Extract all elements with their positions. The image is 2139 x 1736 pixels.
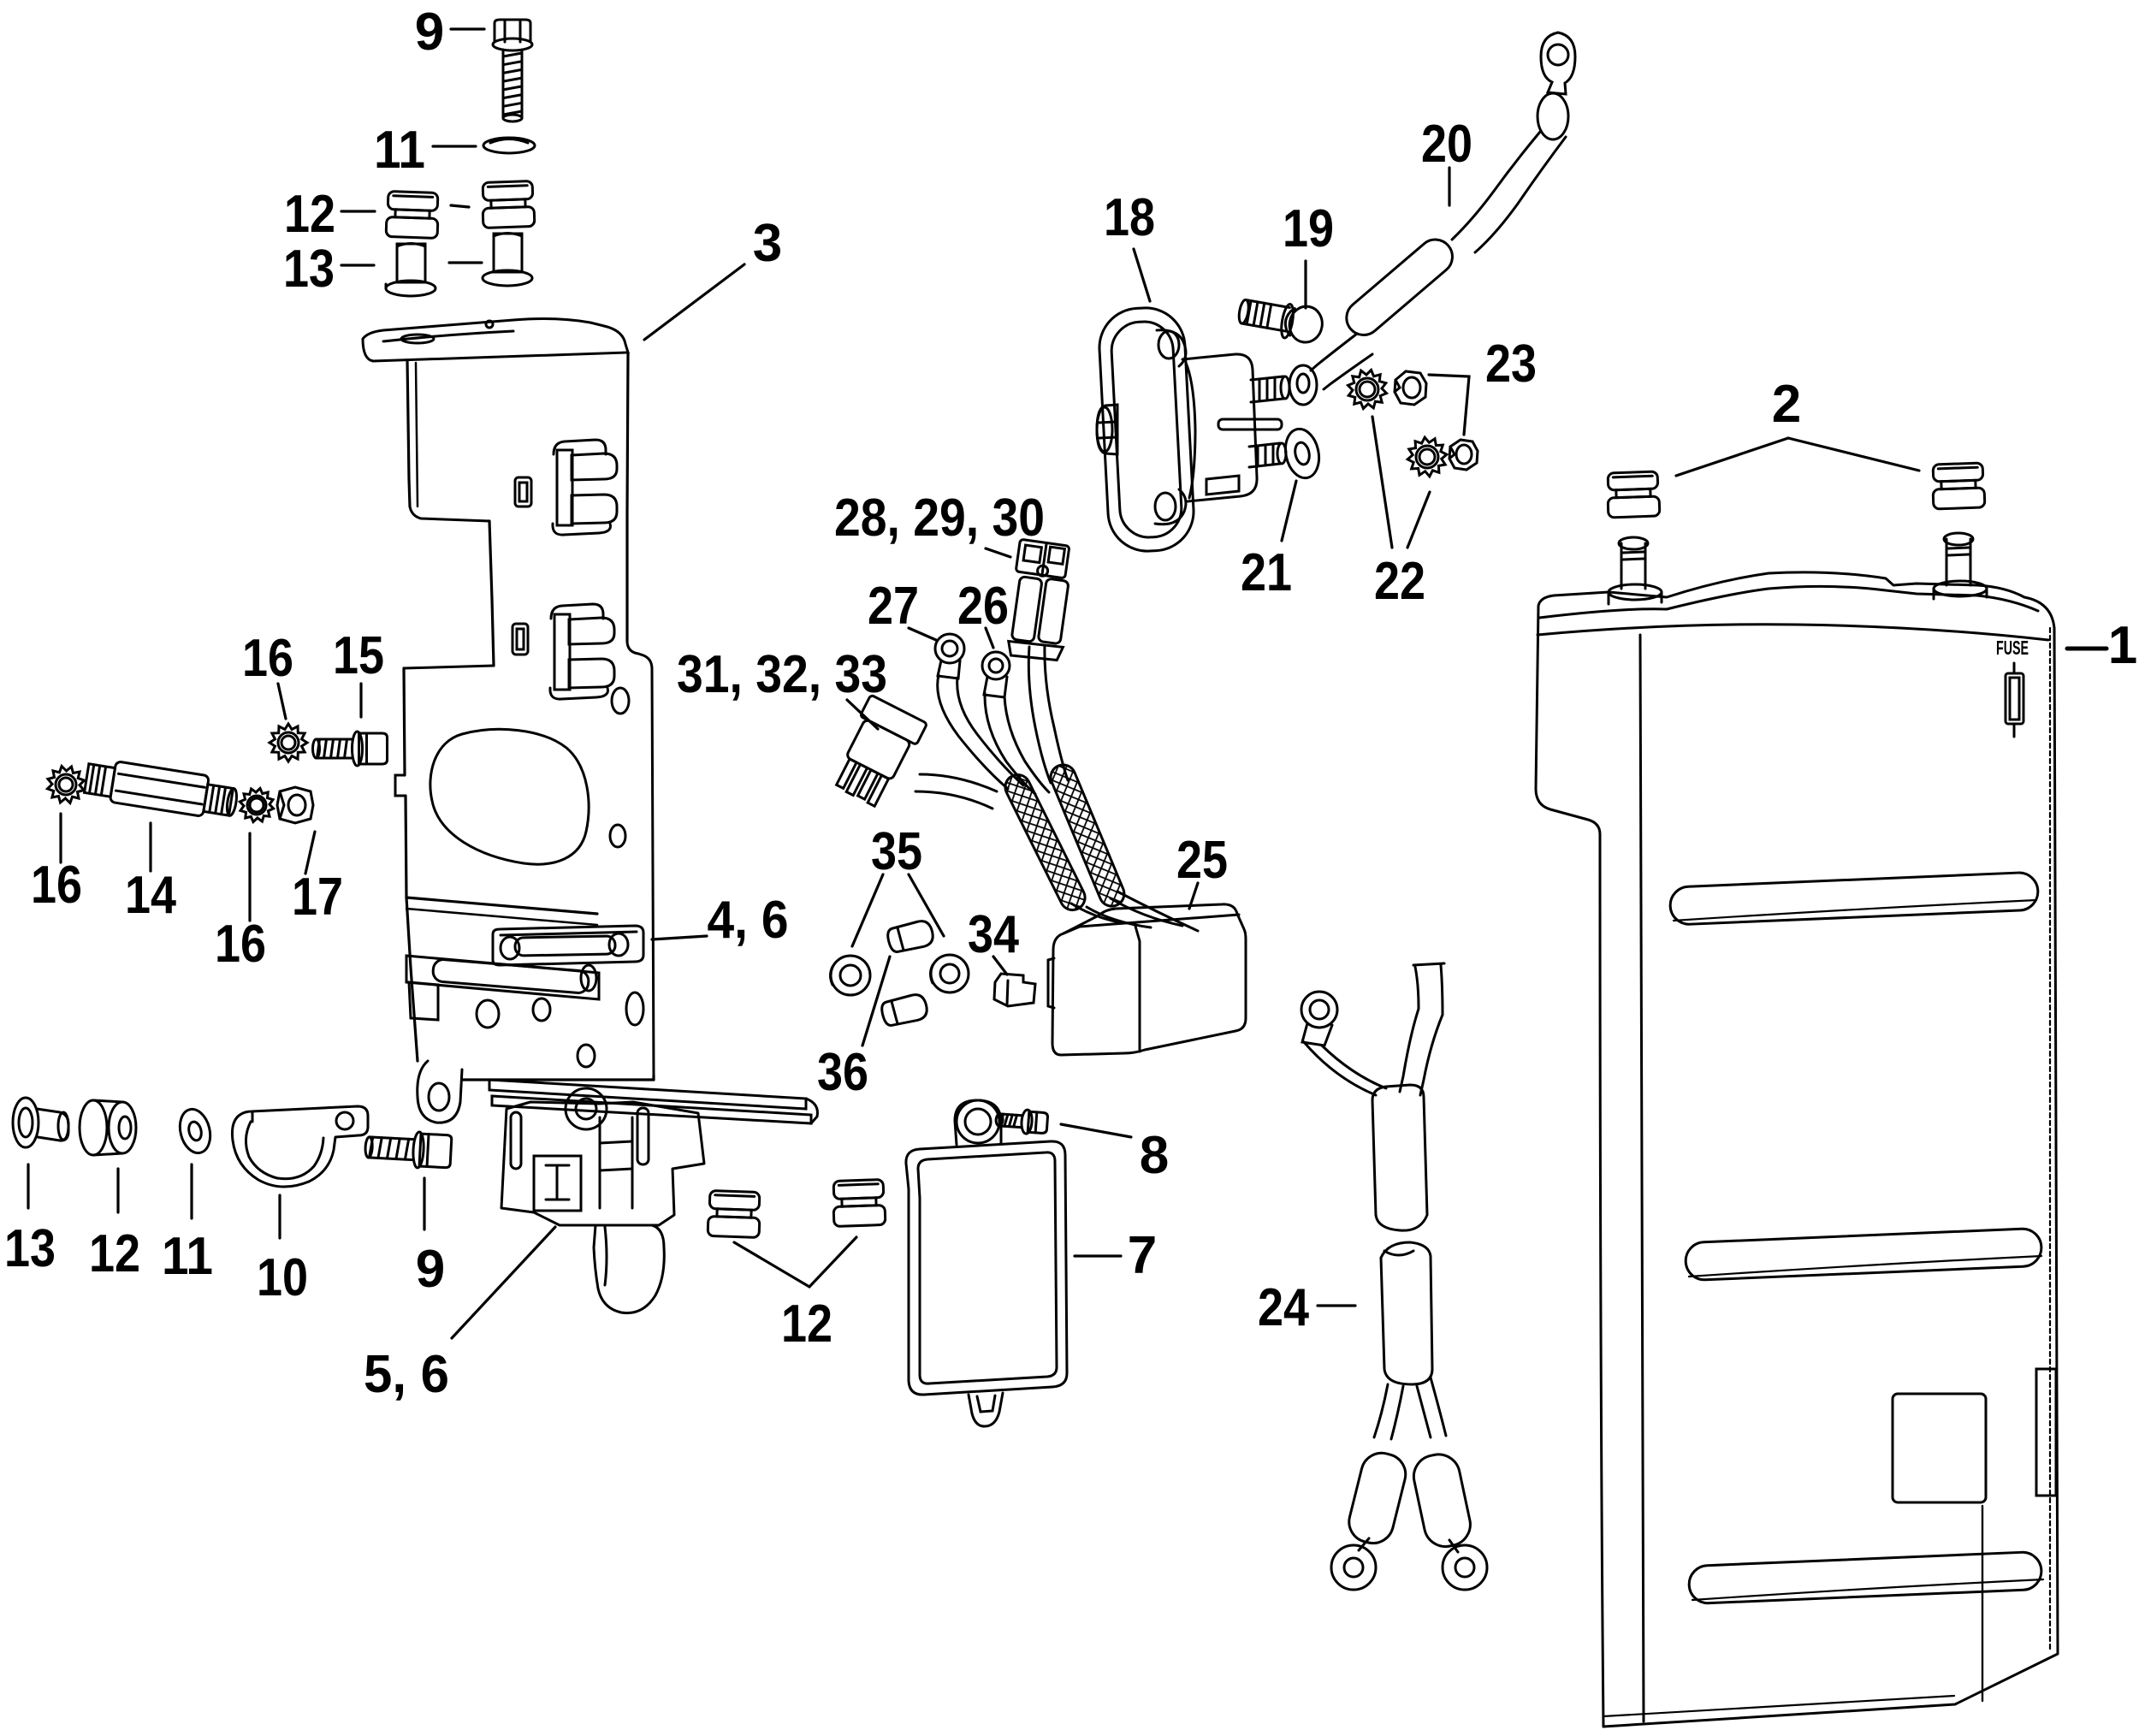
svg-text:11: 11 (374, 121, 425, 180)
svg-text:27: 27 (868, 577, 919, 636)
svg-text:12: 12 (781, 1295, 832, 1354)
svg-text:2: 2 (1772, 375, 1801, 434)
svg-text:14: 14 (125, 866, 176, 925)
svg-text:16: 16 (242, 629, 293, 688)
svg-text:28, 29, 30: 28, 29, 30 (834, 489, 1045, 548)
svg-text:35: 35 (871, 822, 922, 881)
svg-text:4, 6: 4, 6 (708, 891, 789, 950)
svg-text:31, 32, 33: 31, 32, 33 (677, 645, 887, 704)
svg-text:1: 1 (2108, 616, 2137, 675)
svg-text:8: 8 (1140, 1126, 1169, 1185)
svg-text:9: 9 (416, 1240, 445, 1299)
svg-text:24: 24 (1258, 1278, 1309, 1337)
svg-text:17: 17 (292, 868, 343, 927)
svg-text:5, 6: 5, 6 (364, 1345, 449, 1404)
svg-text:21: 21 (1241, 543, 1292, 602)
svg-text:3: 3 (753, 214, 782, 273)
svg-text:16: 16 (215, 915, 266, 974)
svg-text:26: 26 (957, 577, 1009, 636)
svg-text:23: 23 (1485, 335, 1537, 394)
svg-text:25: 25 (1176, 831, 1228, 890)
svg-text:36: 36 (817, 1043, 868, 1102)
svg-text:FUSE: FUSE (1996, 637, 2029, 659)
svg-text:7: 7 (1128, 1226, 1157, 1285)
svg-text:18: 18 (1104, 188, 1155, 247)
svg-text:10: 10 (257, 1248, 308, 1307)
svg-text:9: 9 (415, 3, 444, 62)
svg-text:22: 22 (1374, 552, 1425, 611)
svg-text:16: 16 (31, 856, 82, 915)
svg-text:12: 12 (284, 185, 335, 244)
svg-text:19: 19 (1283, 199, 1334, 258)
svg-text:11: 11 (162, 1227, 213, 1286)
svg-text:20: 20 (1421, 115, 1472, 174)
svg-text:12: 12 (89, 1224, 140, 1283)
svg-text:13: 13 (4, 1219, 56, 1278)
svg-text:13: 13 (283, 240, 335, 299)
svg-text:15: 15 (333, 626, 384, 685)
